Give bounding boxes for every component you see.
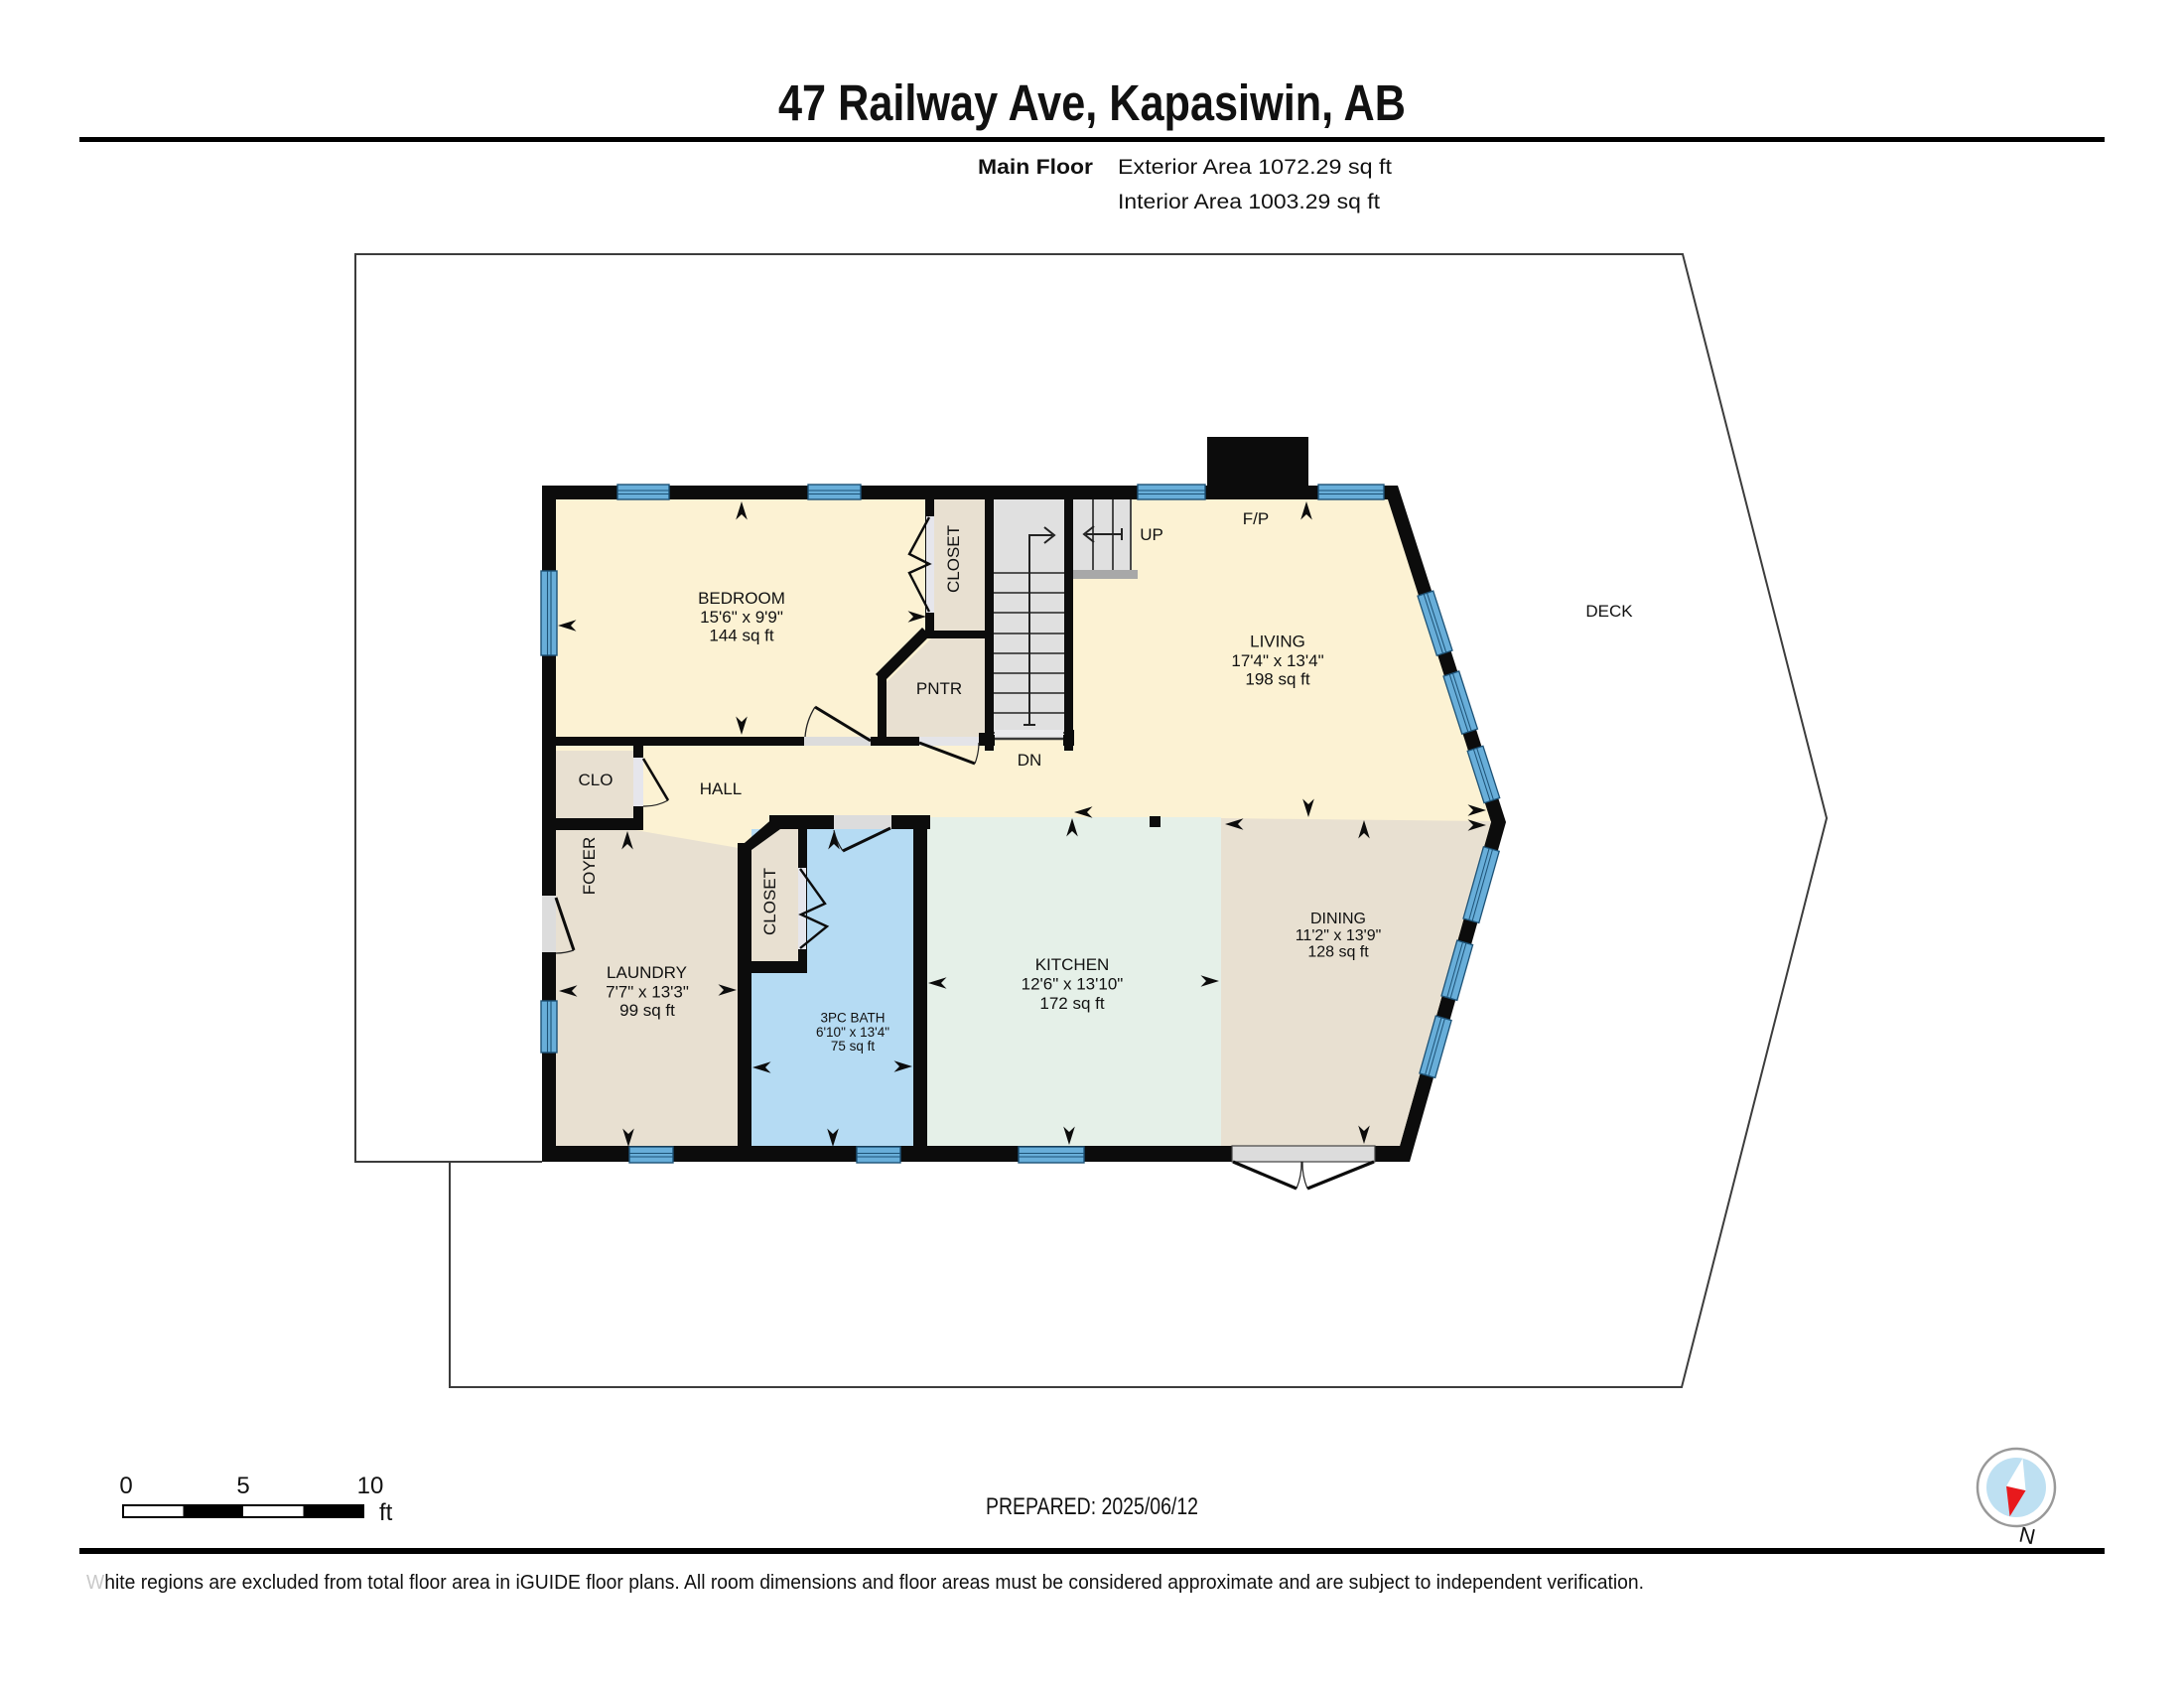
- svg-text:6'10" x 13'4": 6'10" x 13'4": [816, 1025, 889, 1040]
- svg-text:LIVING: LIVING: [1250, 633, 1305, 651]
- svg-text:HALL: HALL: [700, 779, 743, 798]
- svg-text:10: 10: [357, 1473, 384, 1499]
- svg-text:144 sq ft: 144 sq ft: [709, 627, 773, 645]
- svg-text:75 sq ft: 75 sq ft: [831, 1039, 876, 1054]
- svg-text:99 sq ft: 99 sq ft: [619, 1001, 675, 1020]
- svg-text:DECK: DECK: [1585, 602, 1633, 621]
- svg-text:11'2" x 13'9": 11'2" x 13'9": [1296, 927, 1382, 944]
- svg-text:KITCHEN: KITCHEN: [1035, 955, 1110, 974]
- svg-text:15'6" x 9'9": 15'6" x 9'9": [700, 608, 783, 627]
- svg-text:17'4" x 13'4": 17'4" x 13'4": [1231, 651, 1323, 670]
- svg-text:Exterior Area 1072.29 sq ft: Exterior Area 1072.29 sq ft: [1118, 156, 1392, 179]
- svg-text:DN: DN: [1018, 751, 1042, 770]
- svg-text:172 sq ft: 172 sq ft: [1039, 994, 1104, 1013]
- svg-text:PREPARED: 2025/06/12: PREPARED: 2025/06/12: [986, 1493, 1198, 1520]
- svg-text:CLOSET: CLOSET: [760, 868, 779, 935]
- svg-text:0: 0: [119, 1473, 132, 1499]
- svg-text:White regions are excluded fro: White regions are excluded from total fl…: [86, 1572, 1644, 1594]
- svg-text:5: 5: [236, 1473, 249, 1499]
- svg-text:Interior Area 1003.29 sq ft: Interior Area 1003.29 sq ft: [1118, 191, 1380, 213]
- svg-text:CLO: CLO: [579, 771, 614, 789]
- svg-text:UP: UP: [1140, 525, 1163, 544]
- svg-text:F/P: F/P: [1243, 509, 1269, 528]
- svg-text:12'6" x 13'10": 12'6" x 13'10": [1022, 975, 1124, 994]
- svg-text:7'7" x 13'3": 7'7" x 13'3": [606, 983, 689, 1002]
- svg-text:CLOSET: CLOSET: [944, 525, 963, 593]
- svg-text:LAUNDRY: LAUNDRY: [607, 963, 687, 982]
- svg-text:198 sq ft: 198 sq ft: [1245, 670, 1309, 689]
- svg-text:ft: ft: [379, 1499, 393, 1526]
- svg-text:128 sq ft: 128 sq ft: [1307, 944, 1369, 961]
- svg-text:47 Railway Ave, Kapasiwin, AB: 47 Railway Ave, Kapasiwin, AB: [778, 74, 1406, 131]
- svg-text:Main Floor: Main Floor: [978, 156, 1093, 179]
- svg-text:FOYER: FOYER: [580, 837, 599, 896]
- svg-text:DINING: DINING: [1310, 911, 1366, 927]
- svg-text:BEDROOM: BEDROOM: [698, 589, 785, 608]
- svg-text:PNTR: PNTR: [916, 679, 962, 698]
- svg-text:3PC BATH: 3PC BATH: [820, 1011, 885, 1026]
